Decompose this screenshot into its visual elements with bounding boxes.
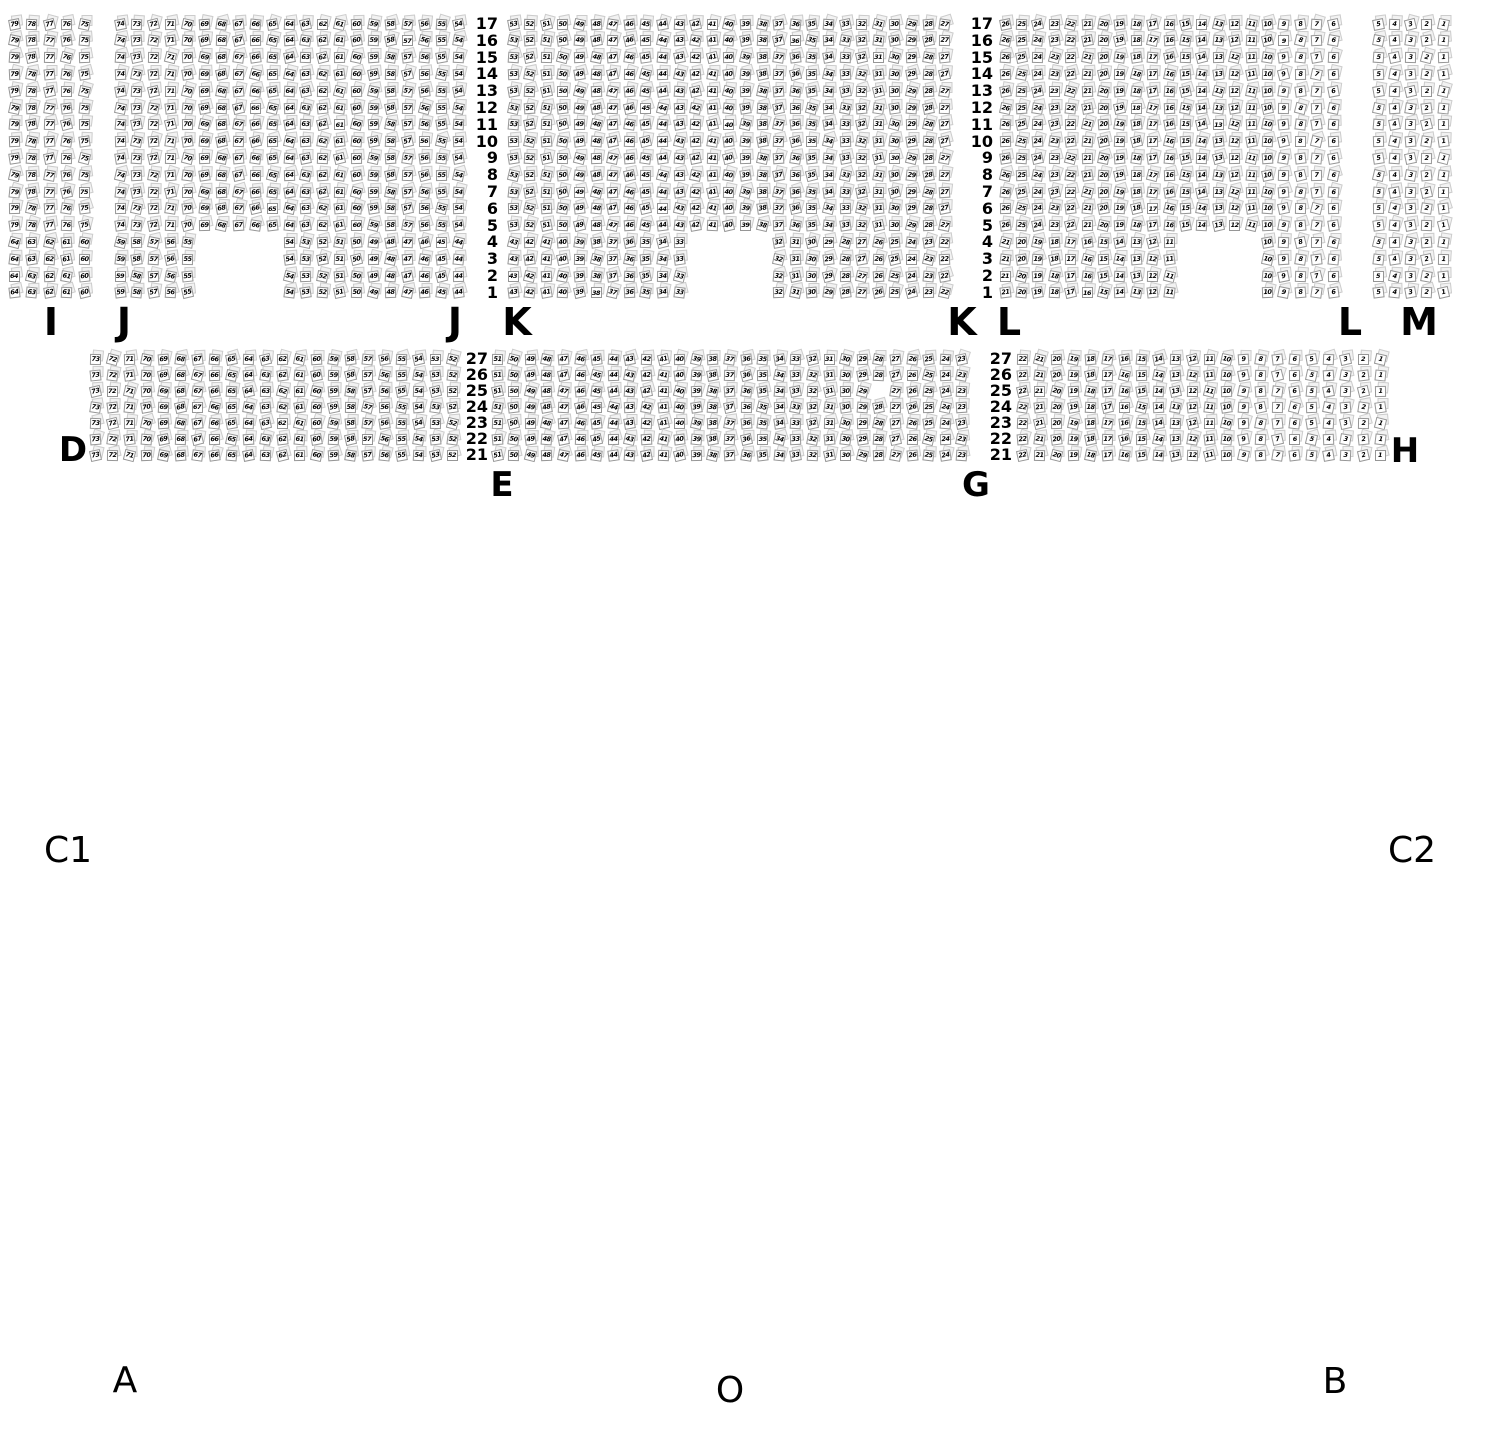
seat[interactable]: 64 (243, 386, 254, 397)
seat[interactable]: 45 (591, 354, 602, 365)
seat[interactable]: 36 (741, 386, 752, 397)
seat[interactable]: 5 (1306, 418, 1317, 429)
seat[interactable]: 40 (674, 370, 685, 381)
seat[interactable]: 12 (1187, 418, 1198, 429)
seat[interactable]: 57 (362, 418, 373, 429)
seat[interactable]: 23 (956, 450, 967, 461)
seat[interactable]: 1 (1375, 402, 1386, 413)
seat[interactable]: 37 (724, 370, 735, 381)
seat[interactable]: 35 (757, 386, 768, 397)
seat[interactable]: 6 (1289, 434, 1300, 445)
seat[interactable]: 27 (890, 354, 901, 365)
seat[interactable]: 26 (907, 418, 918, 429)
seat[interactable]: 28 (873, 434, 884, 445)
seat[interactable]: 69 (158, 402, 169, 413)
seat[interactable]: 26 (907, 386, 918, 397)
seat[interactable]: 53 (430, 418, 441, 429)
seat[interactable]: 22 (1017, 418, 1028, 429)
seat[interactable]: 21 (1034, 370, 1045, 381)
seat[interactable]: 55 (396, 450, 407, 461)
seat[interactable]: 40 (674, 386, 685, 397)
seat[interactable]: 38 (707, 354, 718, 365)
seat[interactable]: 51 (492, 434, 503, 445)
seat[interactable]: 55 (396, 418, 407, 429)
seat[interactable]: 61 (294, 386, 305, 397)
seat[interactable]: 19 (1068, 402, 1079, 413)
seat[interactable]: 10 (1221, 354, 1232, 365)
seat[interactable]: 37 (724, 418, 735, 429)
seat[interactable]: 22 (1017, 386, 1028, 397)
seat[interactable]: 37 (724, 354, 735, 365)
seat[interactable]: 5 (1306, 370, 1317, 381)
seat[interactable]: 23 (956, 418, 967, 429)
seat[interactable]: 40 (674, 434, 685, 445)
seat[interactable]: 44 (608, 418, 619, 429)
seat[interactable]: 27 (890, 434, 901, 445)
seat[interactable]: 43 (624, 450, 635, 461)
seat[interactable]: 48 (541, 386, 552, 397)
seat[interactable]: 48 (541, 402, 552, 413)
seat[interactable]: 14 (1153, 354, 1164, 365)
seat[interactable]: 41 (658, 370, 669, 381)
seat[interactable]: 17 (1102, 354, 1113, 365)
seat[interactable]: 51 (492, 402, 503, 413)
seat[interactable]: 13 (1170, 402, 1181, 413)
seat[interactable]: 32 (807, 418, 818, 429)
seat[interactable]: 46 (575, 370, 586, 381)
seat[interactable]: 13 (1170, 386, 1181, 397)
seat[interactable]: 34 (774, 354, 785, 365)
seat[interactable]: 62 (277, 418, 288, 429)
seat[interactable]: 6 (1289, 354, 1300, 365)
seat[interactable]: 37 (724, 450, 735, 461)
seat[interactable]: 10 (1221, 418, 1232, 429)
seat[interactable]: 7 (1272, 402, 1283, 413)
seat[interactable]: 69 (158, 450, 169, 461)
seat[interactable]: 59 (328, 354, 339, 365)
seat[interactable]: 59 (328, 370, 339, 381)
seat[interactable]: 72 (107, 418, 118, 429)
seat[interactable]: 55 (396, 370, 407, 381)
seat[interactable]: 33 (790, 402, 801, 413)
seat[interactable]: 50 (508, 354, 519, 365)
seat[interactable]: 24 (940, 386, 951, 397)
seat[interactable]: 33 (790, 434, 801, 445)
seat[interactable]: 58 (345, 386, 356, 397)
seat[interactable]: 29 (857, 354, 868, 365)
seat[interactable]: 68 (175, 402, 186, 413)
seat[interactable]: 5 (1306, 354, 1317, 365)
seat[interactable]: 63 (260, 402, 271, 413)
seat[interactable]: 27 (890, 418, 901, 429)
seat[interactable]: 24 (940, 402, 951, 413)
seat[interactable]: 53 (430, 450, 441, 461)
seat[interactable]: 52 (447, 434, 458, 445)
seat[interactable]: 61 (294, 402, 305, 413)
seat[interactable]: 11 (1204, 370, 1215, 381)
seat[interactable]: 25 (923, 370, 934, 381)
seat[interactable]: 57 (362, 402, 373, 413)
seat[interactable]: 6 (1289, 418, 1300, 429)
seat[interactable]: 34 (774, 386, 785, 397)
seat[interactable]: 2 (1358, 402, 1369, 413)
seat[interactable]: 16 (1119, 434, 1130, 445)
seat[interactable]: 33 (790, 370, 801, 381)
seat[interactable]: 52 (447, 418, 458, 429)
seat[interactable]: 17 (1102, 450, 1113, 461)
seat[interactable]: 52 (447, 354, 458, 365)
seat[interactable]: 14 (1153, 386, 1164, 397)
seat[interactable]: 62 (277, 354, 288, 365)
seat[interactable]: 17 (1102, 418, 1113, 429)
seat[interactable]: 31 (824, 402, 835, 413)
seat[interactable]: 45 (591, 402, 602, 413)
seat[interactable]: 59 (328, 434, 339, 445)
seat[interactable]: 39 (691, 386, 702, 397)
seat[interactable]: 70 (141, 370, 152, 381)
seat[interactable]: 67 (192, 434, 203, 445)
seat[interactable]: 50 (508, 450, 519, 461)
seat[interactable]: 73 (90, 402, 101, 413)
seat[interactable]: 49 (525, 370, 536, 381)
seat[interactable]: 18 (1085, 386, 1096, 397)
seat[interactable]: 72 (107, 402, 118, 413)
seat[interactable]: 6 (1289, 386, 1300, 397)
seat[interactable]: 58 (345, 370, 356, 381)
seat[interactable]: 15 (1136, 386, 1147, 397)
seat[interactable]: 28 (873, 450, 884, 461)
seat[interactable]: 4 (1323, 402, 1334, 413)
seat[interactable]: 54 (413, 370, 424, 381)
seat[interactable]: 31 (824, 418, 835, 429)
seat[interactable]: 50 (508, 370, 519, 381)
seat[interactable]: 67 (192, 354, 203, 365)
seat[interactable]: 20 (1051, 354, 1062, 365)
seat[interactable]: 68 (175, 370, 186, 381)
seat[interactable]: 47 (558, 370, 569, 381)
seat[interactable]: 71 (124, 386, 135, 397)
seat[interactable]: 45 (591, 434, 602, 445)
seat[interactable]: 10 (1221, 434, 1232, 445)
seat[interactable]: 1 (1375, 386, 1386, 397)
seat[interactable]: 26 (907, 450, 918, 461)
seat[interactable]: 1 (1375, 354, 1386, 365)
seat[interactable]: 6 (1289, 450, 1300, 461)
seat[interactable]: 73 (90, 354, 101, 365)
seat[interactable]: 60 (311, 370, 322, 381)
seat[interactable]: 22 (1017, 354, 1028, 365)
seat[interactable]: 17 (1102, 370, 1113, 381)
seat[interactable]: 44 (608, 386, 619, 397)
seat[interactable]: 18 (1085, 418, 1096, 429)
seat[interactable]: 24 (940, 434, 951, 445)
seat[interactable]: 56 (379, 402, 390, 413)
seat[interactable]: 21 (1034, 402, 1045, 413)
seat[interactable]: 5 (1306, 450, 1317, 461)
seat[interactable]: 17 (1102, 402, 1113, 413)
seat[interactable]: 17 (1102, 434, 1113, 445)
seat[interactable]: 8 (1255, 354, 1266, 365)
seat[interactable]: 5 (1306, 402, 1317, 413)
seat[interactable]: 12 (1187, 386, 1198, 397)
seat[interactable]: 39 (691, 354, 702, 365)
seat[interactable]: 29 (857, 450, 868, 461)
seat[interactable]: 18 (1085, 434, 1096, 445)
seat[interactable]: 34 (774, 370, 785, 381)
seat[interactable]: 45 (591, 370, 602, 381)
seat[interactable]: 21 (1034, 386, 1045, 397)
seat[interactable]: 67 (192, 402, 203, 413)
seat[interactable]: 18 (1085, 370, 1096, 381)
seat[interactable]: 70 (141, 402, 152, 413)
seat[interactable]: 70 (141, 354, 152, 365)
seat[interactable]: 63 (260, 370, 271, 381)
seat[interactable]: 57 (362, 370, 373, 381)
seat[interactable]: 13 (1170, 418, 1181, 429)
seat[interactable]: 69 (158, 418, 169, 429)
seat[interactable]: 21 (1034, 354, 1045, 365)
seat[interactable]: 72 (107, 450, 118, 461)
seat[interactable]: 46 (575, 434, 586, 445)
seat[interactable]: 54 (413, 418, 424, 429)
seat[interactable]: 2 (1358, 370, 1369, 381)
seat[interactable]: 71 (124, 434, 135, 445)
seat[interactable]: 61 (294, 434, 305, 445)
seat[interactable]: 35 (757, 450, 768, 461)
seat[interactable]: 41 (658, 450, 669, 461)
seat[interactable]: 59 (328, 386, 339, 397)
seat[interactable]: 22 (1017, 450, 1028, 461)
seat[interactable]: 20 (1051, 386, 1062, 397)
seat[interactable]: 49 (525, 386, 536, 397)
seat[interactable]: 65 (226, 370, 237, 381)
seat[interactable]: 32 (807, 386, 818, 397)
seat[interactable]: 35 (757, 370, 768, 381)
seat[interactable]: 48 (541, 354, 552, 365)
seat[interactable]: 28 (873, 402, 884, 413)
seat[interactable]: 42 (641, 418, 652, 429)
seat[interactable]: 49 (525, 450, 536, 461)
seat[interactable]: 4 (1323, 370, 1334, 381)
seat[interactable]: 27 (890, 450, 901, 461)
seat[interactable]: 63 (260, 418, 271, 429)
seat[interactable]: 41 (658, 418, 669, 429)
seat[interactable]: 10 (1221, 450, 1232, 461)
seat[interactable]: 54 (413, 434, 424, 445)
seat[interactable]: 57 (362, 450, 373, 461)
seat[interactable]: 53 (430, 386, 441, 397)
seat[interactable]: 41 (658, 386, 669, 397)
seat[interactable]: 65 (226, 434, 237, 445)
seat[interactable]: 4 (1323, 434, 1334, 445)
seat[interactable]: 13 (1170, 354, 1181, 365)
seat[interactable]: 4 (1323, 418, 1334, 429)
seat[interactable]: 16 (1119, 450, 1130, 461)
seat[interactable]: 34 (774, 402, 785, 413)
seat[interactable]: 51 (492, 370, 503, 381)
seat[interactable]: 66 (209, 386, 220, 397)
seat[interactable]: 47 (558, 450, 569, 461)
seat[interactable]: 54 (413, 354, 424, 365)
seat[interactable]: 26 (907, 402, 918, 413)
seat[interactable]: 73 (90, 370, 101, 381)
seat[interactable]: 56 (379, 386, 390, 397)
seat[interactable]: 67 (192, 450, 203, 461)
seat[interactable]: 54 (413, 450, 424, 461)
seat[interactable]: 16 (1119, 354, 1130, 365)
seat[interactable]: 59 (328, 418, 339, 429)
seat[interactable]: 29 (857, 386, 868, 397)
seat[interactable]: 46 (575, 450, 586, 461)
seat[interactable]: 35 (757, 402, 768, 413)
seat[interactable]: 29 (857, 418, 868, 429)
seat[interactable]: 7 (1272, 450, 1283, 461)
seat[interactable]: 33 (790, 386, 801, 397)
seat[interactable]: 53 (430, 402, 441, 413)
seat[interactable]: 71 (124, 450, 135, 461)
seat[interactable]: 51 (492, 354, 503, 365)
seat[interactable]: 68 (175, 434, 186, 445)
seat[interactable]: 32 (807, 402, 818, 413)
seat[interactable]: 60 (311, 450, 322, 461)
seat[interactable]: 38 (707, 418, 718, 429)
seat[interactable]: 51 (492, 418, 503, 429)
seat[interactable]: 37 (724, 386, 735, 397)
seat[interactable]: 50 (508, 402, 519, 413)
seat[interactable]: 44 (608, 434, 619, 445)
seat[interactable]: 31 (824, 370, 835, 381)
seat[interactable]: 66 (209, 370, 220, 381)
seat[interactable]: 29 (857, 402, 868, 413)
seat[interactable]: 11 (1204, 354, 1215, 365)
seat[interactable]: 34 (774, 418, 785, 429)
seat[interactable]: 1 (1375, 450, 1386, 461)
seat[interactable]: 47 (558, 418, 569, 429)
seat[interactable]: 38 (707, 386, 718, 397)
seat[interactable]: 46 (575, 402, 586, 413)
seat[interactable]: 14 (1153, 402, 1164, 413)
seat[interactable]: 32 (807, 434, 818, 445)
seat[interactable]: 62 (277, 402, 288, 413)
seat[interactable]: 40 (674, 418, 685, 429)
seat[interactable]: 72 (107, 434, 118, 445)
seat[interactable]: 2 (1358, 386, 1369, 397)
seat[interactable]: 72 (107, 386, 118, 397)
seat[interactable]: 12 (1187, 434, 1198, 445)
seat[interactable]: 62 (277, 434, 288, 445)
seat[interactable]: 54 (413, 386, 424, 397)
seat[interactable]: 26 (907, 370, 918, 381)
seat[interactable]: 48 (541, 450, 552, 461)
seat[interactable]: 30 (840, 354, 851, 365)
seat[interactable]: 57 (362, 354, 373, 365)
seat[interactable]: 37 (724, 402, 735, 413)
seat[interactable]: 14 (1153, 434, 1164, 445)
seat[interactable]: 2 (1358, 450, 1369, 461)
seat[interactable]: 26 (907, 434, 918, 445)
seat[interactable]: 65 (226, 418, 237, 429)
seat[interactable]: 1 (1375, 418, 1386, 429)
seat[interactable]: 50 (508, 386, 519, 397)
seat[interactable]: 69 (158, 370, 169, 381)
seat[interactable]: 65 (226, 450, 237, 461)
seat[interactable]: 60 (311, 418, 322, 429)
seat[interactable]: 28 (873, 370, 884, 381)
seat[interactable]: 15 (1136, 434, 1147, 445)
seat[interactable]: 1 (1375, 434, 1386, 445)
seat[interactable]: 9 (1238, 386, 1249, 397)
seat[interactable]: 69 (158, 434, 169, 445)
seat[interactable]: 48 (541, 418, 552, 429)
seat[interactable]: 23 (956, 402, 967, 413)
seat[interactable]: 9 (1238, 402, 1249, 413)
seat[interactable]: 25 (923, 450, 934, 461)
seat[interactable]: 57 (362, 434, 373, 445)
seat[interactable]: 30 (840, 370, 851, 381)
seat[interactable]: 56 (379, 450, 390, 461)
seat[interactable]: 29 (857, 434, 868, 445)
seat[interactable]: 19 (1068, 354, 1079, 365)
seat[interactable]: 25 (923, 434, 934, 445)
seat[interactable]: 46 (575, 386, 586, 397)
seat[interactable]: 56 (379, 434, 390, 445)
seat[interactable]: 8 (1255, 450, 1266, 461)
seat[interactable]: 43 (624, 354, 635, 365)
seat[interactable]: 23 (956, 370, 967, 381)
seat[interactable]: 7 (1272, 418, 1283, 429)
seat[interactable]: 52 (447, 386, 458, 397)
seat[interactable]: 11 (1204, 450, 1215, 461)
seat[interactable]: 2 (1358, 354, 1369, 365)
seat[interactable]: 13 (1170, 450, 1181, 461)
seat[interactable]: 52 (447, 402, 458, 413)
seat[interactable]: 73 (90, 434, 101, 445)
seat[interactable]: 33 (790, 450, 801, 461)
seat[interactable]: 61 (294, 354, 305, 365)
seat[interactable]: 3 (1340, 450, 1351, 461)
seat[interactable]: 7 (1272, 354, 1283, 365)
seat[interactable]: 51 (492, 450, 503, 461)
seat[interactable]: 28 (873, 354, 884, 365)
seat[interactable]: 30 (840, 402, 851, 413)
seat[interactable]: 38 (707, 402, 718, 413)
seat[interactable]: 43 (624, 402, 635, 413)
seat[interactable]: 22 (1017, 402, 1028, 413)
seat[interactable]: 53 (430, 354, 441, 365)
seat[interactable]: 12 (1187, 450, 1198, 461)
seat[interactable]: 8 (1255, 418, 1266, 429)
seat[interactable]: 9 (1238, 418, 1249, 429)
seat[interactable]: 4 (1323, 386, 1334, 397)
seat[interactable]: 30 (840, 386, 851, 397)
seat[interactable]: 15 (1136, 402, 1147, 413)
seat[interactable]: 47 (558, 386, 569, 397)
seat[interactable]: 11 (1204, 386, 1215, 397)
seat[interactable]: 52 (447, 450, 458, 461)
seat[interactable]: 65 (226, 386, 237, 397)
seat[interactable]: 36 (741, 450, 752, 461)
seat[interactable]: 65 (226, 402, 237, 413)
seat[interactable]: 2 (1358, 418, 1369, 429)
seat[interactable]: 64 (243, 370, 254, 381)
seat[interactable]: 72 (107, 370, 118, 381)
seat[interactable]: 31 (824, 450, 835, 461)
seat[interactable]: 36 (741, 434, 752, 445)
seat[interactable]: 46 (575, 418, 586, 429)
seat[interactable]: 25 (923, 402, 934, 413)
seat[interactable]: 10 (1221, 402, 1232, 413)
seat[interactable]: 56 (379, 418, 390, 429)
